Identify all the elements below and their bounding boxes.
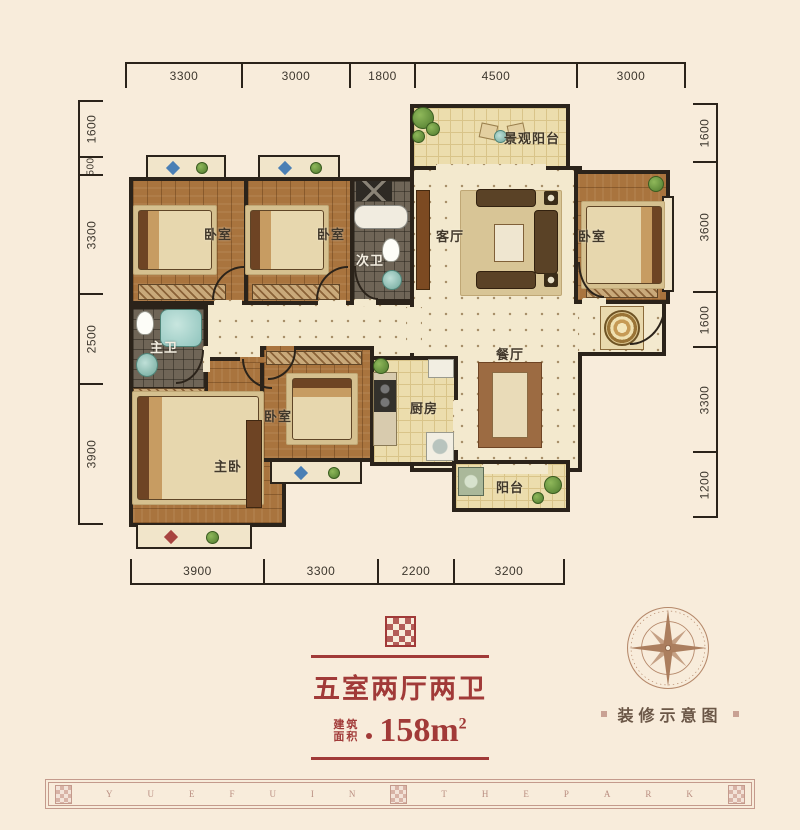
dimension-segment: 3300: [263, 559, 379, 585]
dimension-segment: 1600: [693, 291, 718, 348]
sink: [382, 270, 402, 290]
footer-letter: N: [349, 789, 357, 799]
room-label-bedroom-top-mid: 卧室: [317, 224, 345, 243]
decor-icon: [278, 161, 292, 175]
dimension-label: 3900: [85, 440, 99, 469]
door-opening: [453, 400, 460, 450]
sink: [136, 353, 158, 377]
bay-window: [146, 155, 226, 179]
room-label-balcony: 阳台: [496, 477, 524, 496]
area-label: 建筑 面积: [333, 719, 359, 743]
door-opening: [203, 346, 210, 372]
toilet: [382, 238, 400, 262]
sofa: [476, 271, 536, 289]
footer-seal-icon: [55, 785, 72, 804]
dimension-segment: 2500: [78, 293, 103, 385]
dimension-segment: 3000: [576, 62, 686, 88]
dimension-segment: 2200: [377, 559, 455, 585]
dimension-segment: 3900: [130, 559, 265, 585]
door-opening: [318, 300, 346, 307]
legend-caption: 装修示意图: [594, 702, 746, 726]
room-label-bedroom-small: 卧室: [264, 406, 292, 425]
building-area: 建筑 面积 158m2: [311, 714, 489, 748]
door-opening: [406, 307, 422, 353]
side-table: [544, 191, 558, 205]
footer-letter: T: [441, 789, 448, 799]
plant-icon: [310, 162, 322, 174]
kitchen-sink: [426, 432, 454, 461]
water-heater: [356, 181, 392, 201]
side-table: [544, 273, 558, 287]
area-number: 158m: [379, 712, 458, 749]
footer-letter: A: [604, 789, 612, 799]
plant-icon: [373, 358, 389, 374]
dimension-segment: 3300: [693, 346, 718, 453]
bed: [250, 210, 324, 270]
door-opening: [214, 300, 242, 307]
bed: [138, 210, 212, 270]
dimension-segment: 3000: [241, 62, 351, 88]
dimension-segment: 3300: [78, 174, 103, 295]
area-value: 158m2: [379, 714, 466, 748]
dimension-label: 1200: [698, 470, 712, 499]
dimension-segment: 4500: [414, 62, 578, 88]
bed: [137, 396, 259, 500]
plant-icon: [544, 476, 562, 494]
dimension-label: 1600: [85, 115, 99, 144]
dimension-segment: 3200: [453, 559, 565, 585]
footer-letter: H: [482, 789, 490, 799]
plan-type-title: 五室两厅两卫: [311, 667, 489, 706]
area-superscript: 2: [459, 716, 467, 733]
plant-icon: [648, 176, 664, 192]
bay-window: [270, 460, 362, 484]
washing-machine: [458, 467, 484, 496]
fridge: [428, 359, 454, 378]
room-label-second-bath: 次卫: [356, 250, 384, 269]
footer-seal-icon: [390, 785, 407, 804]
footer-band-inner: Y U E F U I N T H E P A R K: [48, 782, 752, 806]
footer-letter: E: [523, 789, 530, 799]
footer-letter: E: [189, 789, 196, 799]
toilet: [136, 311, 154, 335]
sofa: [534, 210, 558, 274]
footer-letter: U: [147, 789, 155, 799]
room-label-bedroom-top-left: 卧室: [204, 224, 232, 243]
footer-letter: Y: [106, 789, 114, 799]
plant-icon: [532, 492, 544, 504]
plant-icon: [196, 162, 208, 174]
dimension-label: 500: [86, 157, 97, 175]
room-label-master-bath: 主卫: [150, 337, 178, 356]
dimension-label: 2500: [85, 325, 99, 354]
decor-icon: [166, 161, 180, 175]
sofa: [476, 189, 536, 207]
dimension-label: 3200: [495, 564, 524, 578]
dimension-label: 3300: [698, 385, 712, 414]
dimension-segment: 1800: [349, 62, 416, 88]
bed: [292, 378, 352, 440]
dimension-segment: 500: [78, 156, 103, 176]
dining-table: [492, 372, 528, 438]
footer-letter: U: [269, 789, 277, 799]
dimension-label: 3600: [698, 213, 712, 242]
square-bullet-icon: [733, 711, 739, 717]
dimension-label: 2200: [402, 564, 431, 578]
footer-letter: K: [686, 789, 694, 799]
dimension-label: 3900: [183, 564, 212, 578]
door-opening: [436, 164, 546, 172]
area-label-line1: 建筑: [333, 719, 359, 731]
dimension-segment: 3600: [693, 161, 718, 293]
footer-letter: R: [645, 789, 652, 799]
plant-icon: [328, 467, 340, 479]
room-label-kitchen: 厨房: [410, 398, 438, 417]
divider-line: [311, 655, 489, 658]
dimension-label: 1600: [698, 305, 712, 334]
dimension-label: 3300: [170, 69, 199, 83]
room-label-living: 客厅: [436, 226, 464, 245]
room-label-master-bedroom: 主卧: [214, 456, 242, 475]
footer-letter: I: [311, 789, 315, 799]
decor-icon: [164, 530, 178, 544]
room-label-bedroom-right: 卧室: [578, 226, 606, 245]
seal-stamp-icon: [385, 616, 416, 647]
bay-window: [258, 155, 340, 179]
tv-console: [416, 190, 430, 290]
bay-window: [136, 523, 252, 549]
dimension-segment: 3900: [78, 383, 103, 525]
stove: [374, 380, 396, 412]
dimension-segment: 1600: [78, 100, 103, 158]
decor-icon: [294, 466, 308, 480]
footer-letter: P: [564, 789, 570, 799]
area-label-line2: 面积: [333, 731, 359, 743]
floorplan-canvas: 3300 3000 1800 4500 3000 1600 500 3300 2…: [0, 0, 800, 830]
door-opening: [354, 299, 376, 306]
door-opening: [482, 464, 548, 474]
plan-title-block: 五室两厅两卫 建筑 面积 158m2: [311, 616, 489, 760]
dimension-label: 3300: [307, 564, 336, 578]
dimension-label: 1600: [698, 119, 712, 148]
dimension-label: 1800: [368, 69, 397, 83]
wardrobe: [246, 420, 262, 508]
dimension-segment: 1600: [693, 103, 718, 163]
room-label-view-balcony: 景观阳台: [504, 128, 560, 147]
square-bullet-icon: [601, 711, 607, 717]
footer-seal-icon: [728, 785, 745, 804]
bathtub: [354, 205, 408, 229]
room-label-dining: 餐厅: [496, 344, 524, 363]
dimension-label: 3000: [617, 69, 646, 83]
dimension-label: 3000: [282, 69, 311, 83]
dimension-segment: 3300: [125, 62, 243, 88]
plant-icon: [426, 122, 440, 136]
dimension-label: 4500: [482, 69, 511, 83]
plant-icon: [206, 531, 219, 544]
divider-line: [311, 757, 489, 760]
dimension-label: 3300: [85, 220, 99, 249]
dot-separator-icon: [366, 733, 372, 739]
footer-band: Y U E F U I N T H E P A R K: [45, 779, 755, 809]
compass-icon: [624, 604, 712, 692]
dimension-segment: 1200: [693, 451, 718, 518]
coffee-table: [494, 224, 524, 262]
footer-letter: F: [229, 789, 235, 799]
door-opening: [582, 298, 606, 306]
plant-icon: [412, 130, 425, 143]
legend-caption-text: 装修示意图: [617, 702, 722, 726]
